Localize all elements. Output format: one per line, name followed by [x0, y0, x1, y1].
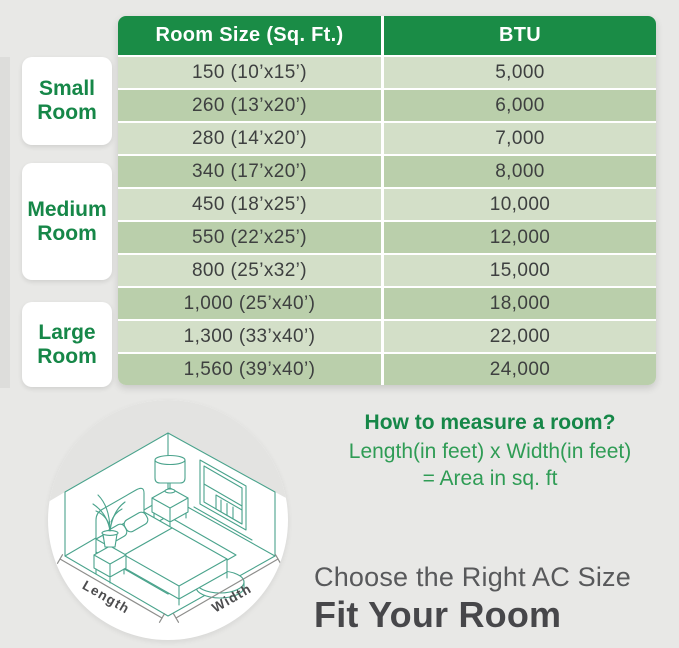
room-illustration-circle: Length Width — [48, 400, 288, 640]
table-row: 450 (18’x25’) 10,000 — [118, 189, 656, 220]
room-size-cell: 340 (17’x20’) — [118, 156, 381, 187]
btu-cell: 6,000 — [384, 90, 656, 121]
table-row: 260 (13’x20’) 6,000 — [118, 90, 656, 121]
measure-instructions: How to measure a room? Length(in feet) x… — [312, 410, 668, 492]
group-label-large-room: Large Room — [22, 302, 112, 387]
footer-titles: Choose the Right AC Size Fit Your Room — [314, 561, 631, 636]
room-size-cell: 1,000 (25’x40’) — [118, 288, 381, 319]
measure-formula-line: Length(in feet) x Width(in feet) — [312, 438, 668, 465]
table-row: 150 (10’x15’) 5,000 — [118, 57, 656, 88]
group-label-line: Room — [37, 222, 97, 246]
btu-cell: 24,000 — [384, 354, 656, 385]
measure-formula-line: = Area in sq. ft — [312, 465, 668, 492]
btu-cell: 18,000 — [384, 288, 656, 319]
table-row: 340 (17’x20’) 8,000 — [118, 156, 656, 187]
group-label-small-room: Small Room — [22, 57, 112, 145]
room-size-cell: 260 (13’x20’) — [118, 90, 381, 121]
left-edge-strip — [0, 57, 10, 388]
group-label-line: Small — [39, 77, 95, 101]
group-label-line: Large — [38, 321, 95, 345]
table-row: 280 (14’x20’) 7,000 — [118, 123, 656, 154]
group-label-line: Medium — [27, 198, 106, 222]
room-size-cell: 1,300 (33’x40’) — [118, 321, 381, 352]
table-row: 550 (22’x25’) 12,000 — [118, 222, 656, 253]
room-size-cell: 150 (10’x15’) — [118, 57, 381, 88]
isometric-room-icon: Length Width — [48, 400, 288, 640]
btu-cell: 10,000 — [384, 189, 656, 220]
table-row: 1,000 (25’x40’) 18,000 — [118, 288, 656, 319]
column-header-room-size: Room Size (Sq. Ft.) — [118, 16, 381, 55]
footer-subtitle: Choose the Right AC Size — [314, 561, 631, 594]
group-label-line: Room — [37, 345, 97, 369]
footer-title: Fit Your Room — [314, 594, 631, 636]
column-header-btu: BTU — [384, 16, 656, 55]
group-label-line: Room — [37, 101, 97, 125]
room-size-cell: 450 (18’x25’) — [118, 189, 381, 220]
room-size-cell: 550 (22’x25’) — [118, 222, 381, 253]
btu-cell: 8,000 — [384, 156, 656, 187]
room-size-cell: 280 (14’x20’) — [118, 123, 381, 154]
table-row: 1,300 (33’x40’) 22,000 — [118, 321, 656, 352]
table-row: 800 (25’x32’) 15,000 — [118, 255, 656, 286]
table-header-row: Room Size (Sq. Ft.) BTU — [118, 16, 656, 55]
btu-cell: 7,000 — [384, 123, 656, 154]
measure-title: How to measure a room? — [312, 410, 668, 436]
btu-cell: 22,000 — [384, 321, 656, 352]
btu-sizing-table: Room Size (Sq. Ft.) BTU 150 (10’x15’) 5,… — [118, 16, 656, 385]
table-row: 1,560 (39’x40’) 24,000 — [118, 354, 656, 385]
room-size-cell: 1,560 (39’x40’) — [118, 354, 381, 385]
btu-cell: 15,000 — [384, 255, 656, 286]
btu-cell: 12,000 — [384, 222, 656, 253]
room-size-cell: 800 (25’x32’) — [118, 255, 381, 286]
btu-cell: 5,000 — [384, 57, 656, 88]
group-label-medium-room: Medium Room — [22, 163, 112, 280]
